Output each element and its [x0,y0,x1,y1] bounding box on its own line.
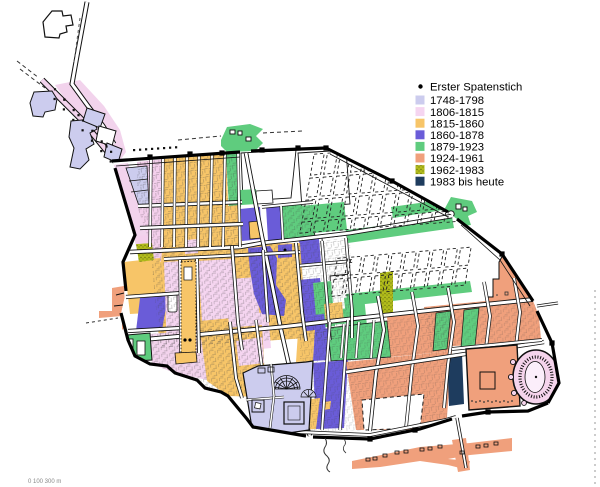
svg-text:1860-1878: 1860-1878 [430,130,484,142]
svg-text:1983 bis heute: 1983 bis heute [430,176,504,188]
svg-text:1806-1815: 1806-1815 [430,107,484,119]
svg-text:1962-1983: 1962-1983 [430,165,484,177]
svg-text:0 100 300 m: 0 100 300 m [28,479,61,485]
svg-text:1815-1860: 1815-1860 [430,118,484,130]
svg-text:1748-1798: 1748-1798 [430,95,484,107]
svg-text:1924-1961: 1924-1961 [430,153,484,165]
svg-text:Erster Spatenstich: Erster Spatenstich [430,82,522,94]
svg-text:1879-1923: 1879-1923 [430,142,484,154]
